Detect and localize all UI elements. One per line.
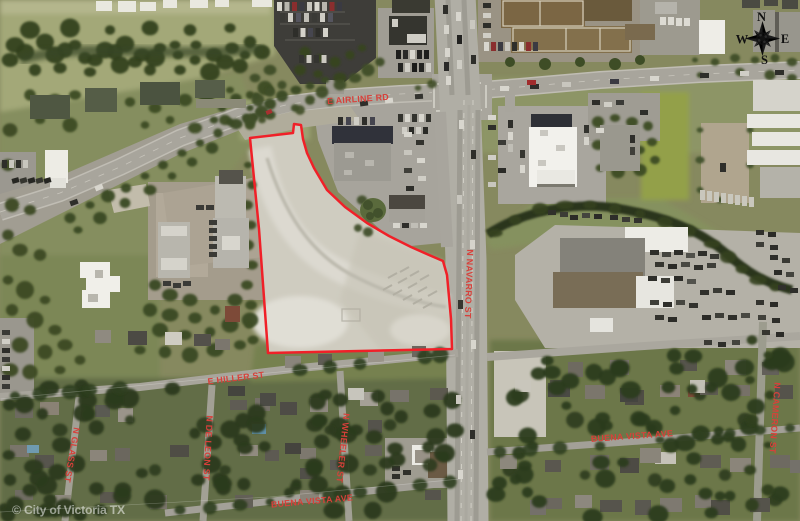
svg-text:© City of Victoria TX: © City of Victoria TX	[12, 503, 126, 517]
svg-text:W: W	[736, 33, 749, 47]
svg-text:N: N	[757, 10, 766, 24]
svg-text:E: E	[781, 32, 789, 46]
svg-text:S: S	[761, 53, 768, 67]
